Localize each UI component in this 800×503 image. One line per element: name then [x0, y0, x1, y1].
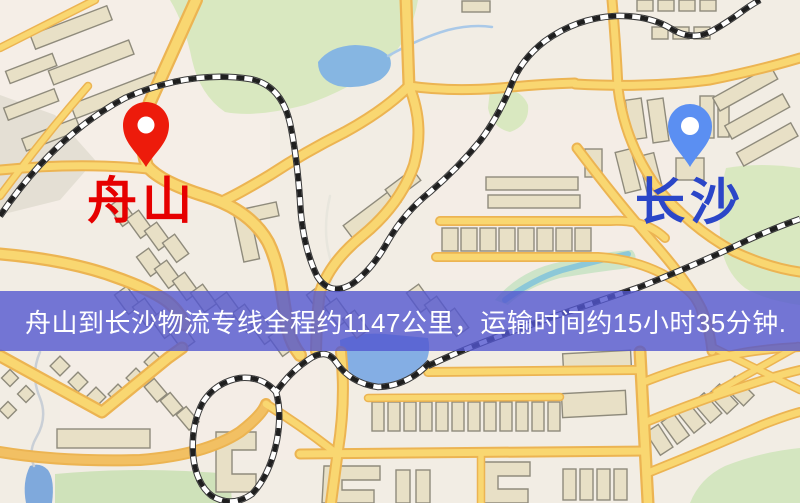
route-summary-text: 舟山到长沙物流专线全程约1147公里，运输时间约15小时35分钟.	[25, 303, 786, 340]
route-summary-banner: 舟山到长沙物流专线全程约1147公里，运输时间约15小时35分钟.	[0, 291, 800, 351]
map-canvas	[0, 0, 800, 503]
route-map: 舟山到长沙物流专线全程约1147公里，运输时间约15小时35分钟. 舟山 长沙	[0, 0, 800, 503]
